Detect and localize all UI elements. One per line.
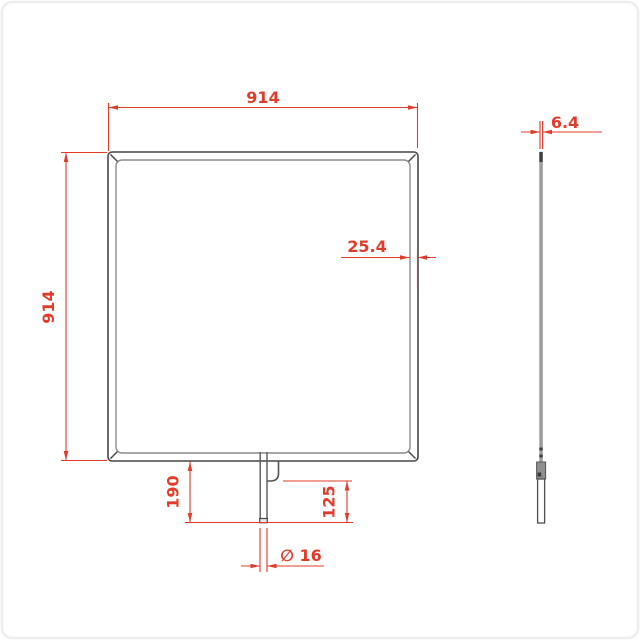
dim-pin-diameter: ∅ 16	[241, 528, 324, 572]
side-panel-edge	[540, 152, 543, 462]
side-panel-mark-1	[539, 448, 542, 451]
front-height-label: 914	[39, 290, 58, 323]
drawing-page: 914 914 25.4 190	[0, 0, 640, 640]
side-bracket-mark	[538, 473, 542, 477]
pin-exposed-label: 125	[320, 485, 339, 518]
dim-pin-exposed: 125	[283, 481, 352, 523]
panel-thickness-label: 6.4	[551, 113, 579, 132]
side-panel-mark-2	[539, 455, 542, 458]
pin-diameter-label: ∅ 16	[280, 546, 322, 565]
dim-front-width: 914	[109, 88, 418, 151]
dim-pin-drop: 190	[164, 462, 193, 523]
pin-drop-label: 190	[164, 475, 183, 508]
mounting-pin	[260, 452, 268, 523]
front-view-flag	[108, 152, 418, 523]
technical-drawing-canvas: 914 914 25.4 190	[0, 0, 640, 640]
flag-outer-edge	[108, 152, 418, 461]
front-width-label: 914	[246, 88, 279, 107]
dim-panel-thickness: 6.4	[521, 113, 602, 149]
frame-depth-label: 25.4	[347, 237, 386, 256]
side-panel-top-cap	[539, 152, 542, 162]
pin-bracket-hook	[268, 461, 279, 482]
side-pin	[538, 479, 545, 523]
side-view-profile	[537, 152, 546, 523]
dim-front-height: 914	[39, 153, 107, 461]
